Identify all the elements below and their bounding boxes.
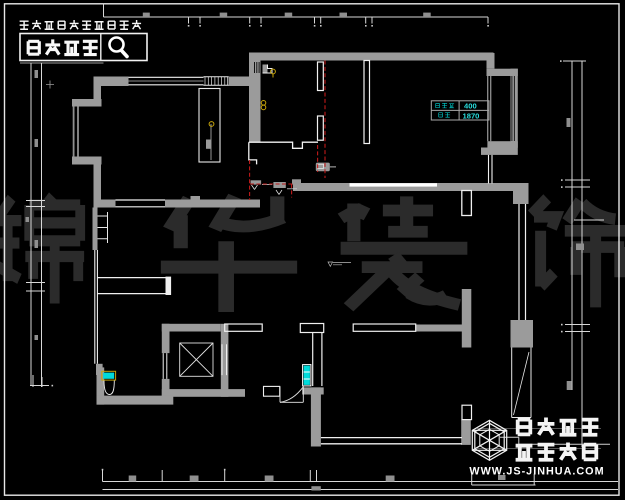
- svg-text:1870: 1870: [463, 111, 480, 120]
- svg-text:WWW.JS-JINHUA.COM: WWW.JS-JINHUA.COM: [469, 466, 604, 478]
- svg-text:400: 400: [464, 102, 477, 111]
